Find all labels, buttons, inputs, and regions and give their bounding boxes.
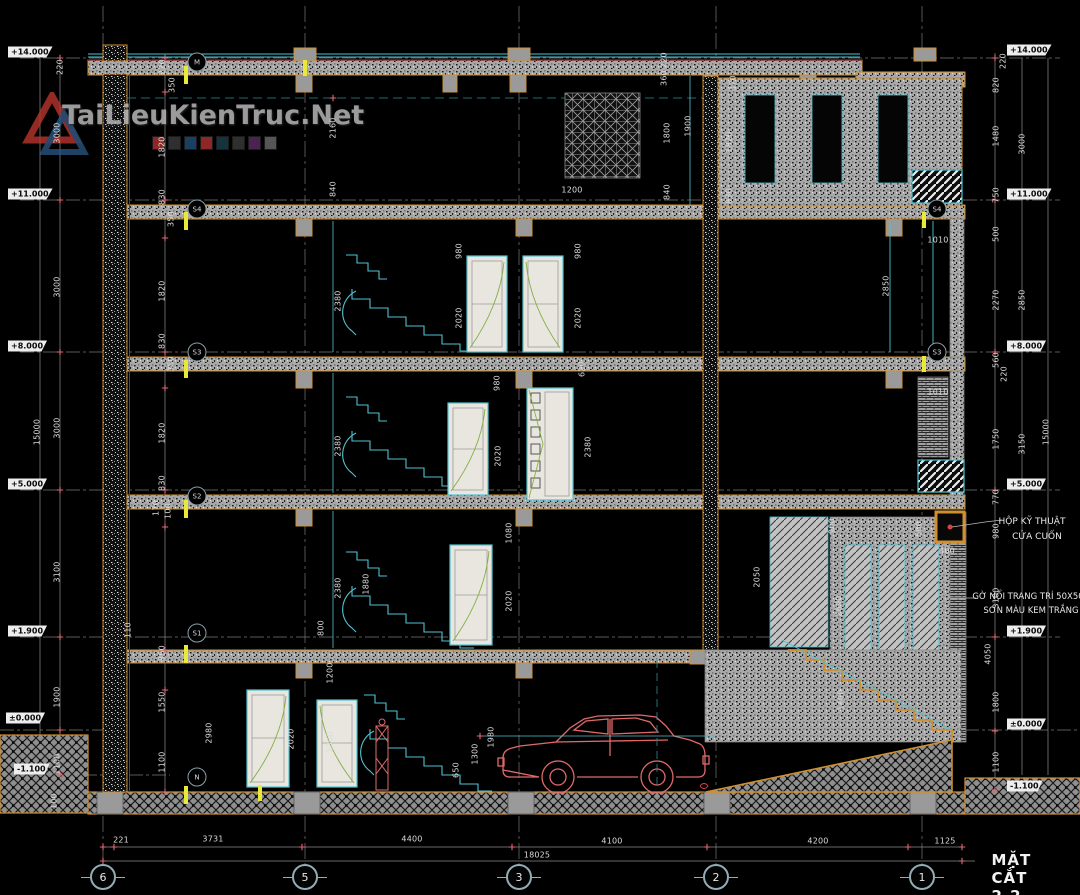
dim-label: 770 [992, 489, 1001, 505]
dim-label: 1820 [725, 131, 734, 152]
elevation-marker: +14.000 [1007, 45, 1052, 56]
section-marker-s4: S4 [188, 200, 207, 219]
dim-label: 980 [455, 243, 464, 259]
bottom-dim-label: 18025 [524, 851, 550, 860]
dim-label: 500 [915, 521, 924, 537]
section-flag [184, 786, 188, 804]
elevation-marker: ±0.000 [1007, 719, 1046, 730]
dim-label: 900 [828, 518, 837, 534]
dim-label: 840 [663, 184, 672, 200]
dim-label: 1200 [326, 662, 335, 683]
grid-bubble-2: 2 [703, 864, 729, 890]
elevation-marker: +11.000 [8, 189, 53, 200]
dim-label: 820 [992, 77, 1001, 93]
bottom-dim-label: 221 [113, 836, 129, 845]
dim-label: 620 [578, 361, 587, 377]
dim-label: 2380 [334, 290, 343, 311]
dim-label: 110 [124, 622, 133, 638]
dim-label: 2270 [992, 289, 1001, 310]
dim-label: 1100 [158, 751, 167, 772]
grid-bubble-5: 5 [292, 864, 318, 890]
dim-label: 2020 [494, 445, 503, 466]
dim-label: 3100 [992, 587, 1001, 608]
section-flag [184, 66, 188, 84]
dim-label: 1820 [158, 280, 167, 301]
dim-label: 2690 [835, 595, 844, 616]
dim-label: 2380 [334, 435, 343, 456]
elevation-marker: +5.000 [1007, 479, 1046, 490]
elevation-marker: +8.000 [8, 341, 47, 352]
dim-label: 2380 [334, 577, 343, 598]
dim-label: 1080 [505, 522, 514, 543]
dim-label: 220 [158, 59, 167, 75]
dim-label: 100 [164, 503, 173, 519]
dim-label: 1820 [158, 422, 167, 443]
section-marker-s3: S3 [188, 343, 207, 362]
dim-label: 1980 [487, 726, 496, 747]
dim-label: 750 [992, 187, 1001, 203]
dim-label: 3000 [53, 417, 62, 438]
dim-label: 830 [725, 188, 734, 204]
dim-label: 15000 [33, 419, 42, 445]
dim-label: 350 [168, 77, 177, 93]
dim-label: 2380 [584, 436, 593, 457]
bottom-dim-label: 3731 [202, 835, 223, 844]
bottom-dim-label: 4100 [601, 837, 622, 846]
elevation-marker: ±0.000 [6, 713, 45, 724]
grid-bubble-1: 1 [909, 864, 935, 890]
dim-label: 1550 [158, 691, 167, 712]
dim-label: 2050 [753, 566, 762, 587]
elevation-marker: +1.900 [1007, 626, 1046, 637]
dim-label: 1800 [326, 731, 335, 752]
dim-label: 2020 [287, 728, 296, 749]
dim-label: 1480 [992, 125, 1001, 146]
dim-label: 350 [167, 356, 176, 372]
dim-label: 1800 [663, 122, 672, 143]
dim-label: 220 [1000, 366, 1009, 382]
dim-label: 1200 [561, 186, 582, 195]
dim-label: 500 [992, 226, 1001, 242]
dim-label: 830 [158, 475, 167, 491]
dim-label: 850 [158, 645, 167, 661]
section-flag [258, 785, 262, 801]
dim-label: 650 [452, 762, 461, 778]
section-marker-s2: S2 [188, 487, 207, 506]
section-marker-s4: S4 [928, 200, 947, 219]
section-marker-n: N [188, 768, 207, 787]
dim-label: 3000 [53, 122, 62, 143]
dim-label: 350 [167, 211, 176, 227]
dim-label: 1900 [53, 686, 62, 707]
dim-label: 3000 [53, 276, 62, 297]
dim-label: 370 [729, 75, 738, 91]
section-marker-s3: S3 [928, 343, 947, 362]
dim-label: 1750 [992, 428, 1001, 449]
grid-bubble-6: 6 [90, 864, 116, 890]
dim-label: 3000 [1018, 133, 1027, 154]
dim-label: 800 [317, 620, 326, 636]
dim-label: 1400 [837, 689, 846, 710]
dim-label: 220 [660, 52, 669, 68]
dim-label: 2850 [882, 275, 891, 296]
section-flag [184, 500, 188, 518]
dim-label: 2850 [1018, 289, 1027, 310]
dim-label: 2160 [329, 117, 338, 138]
dim-label: 1010 [927, 388, 948, 397]
section-marker-m: M [188, 53, 207, 72]
dim-label: 2020 [455, 307, 464, 328]
dim-label: 830 [158, 333, 167, 349]
dim-label: 1300 [471, 743, 480, 764]
dim-label: 1100 [53, 753, 62, 774]
dim-label: 100 [50, 793, 59, 809]
elevation-marker: +8.000 [1007, 341, 1046, 352]
dim-label: 980 [574, 243, 583, 259]
dim-label: 1880 [362, 573, 371, 594]
dim-label: 980 [992, 523, 1001, 539]
grid-bubble-3: 3 [506, 864, 532, 890]
section-flag [184, 212, 188, 230]
dim-label: 830 [158, 189, 167, 205]
dim-label: 1900 [684, 115, 693, 136]
section-flag [184, 645, 188, 663]
section-flag [922, 356, 926, 372]
dim-label: 840 [329, 181, 338, 197]
bottom-dim-label: 4200 [807, 837, 828, 846]
dim-label: 2020 [574, 307, 583, 328]
dim-label: 980 [493, 375, 502, 391]
dim-label: 220 [999, 53, 1008, 69]
dim-label: 2980 [205, 722, 214, 743]
labels-layer: 1500030003000300031001900110010022022035… [0, 0, 1080, 895]
dim-label: 360 [660, 70, 669, 86]
dim-label: 1010 [927, 236, 948, 245]
elevation-marker: +11.000 [1007, 189, 1052, 200]
section-drawing-canvas: TaiLieuKienTruc.Net HỘP KỸ THUẬT CỬA CUỐ… [0, 0, 1080, 895]
elevation-marker: +5.000 [8, 479, 47, 490]
elevation-marker: -1.100 [1007, 781, 1043, 792]
section-flag [303, 60, 307, 76]
dim-label: 15000 [1042, 419, 1051, 445]
dim-label: 4050 [984, 643, 993, 664]
dim-label: 220 [56, 59, 65, 75]
elevation-marker: -1.100 [14, 764, 50, 775]
dim-label: 3150 [1018, 433, 1027, 454]
dim-label: 2020 [505, 590, 514, 611]
bottom-dim-label: 1125 [934, 837, 955, 846]
dim-label: 1820 [158, 136, 167, 157]
section-flag [184, 360, 188, 378]
elevation-marker: +14.000 [8, 47, 53, 58]
section-marker-s1: S1 [188, 624, 207, 643]
dim-label: 3100 [53, 561, 62, 582]
dim-label: 1800 [992, 691, 1001, 712]
elevation-marker: +1.900 [8, 626, 47, 637]
dim-label: 170 [152, 500, 161, 516]
dim-label: 1100 [992, 751, 1001, 772]
dim-label: 400 [939, 547, 955, 556]
bottom-dim-label: 4400 [401, 835, 422, 844]
section-flag [922, 212, 926, 228]
